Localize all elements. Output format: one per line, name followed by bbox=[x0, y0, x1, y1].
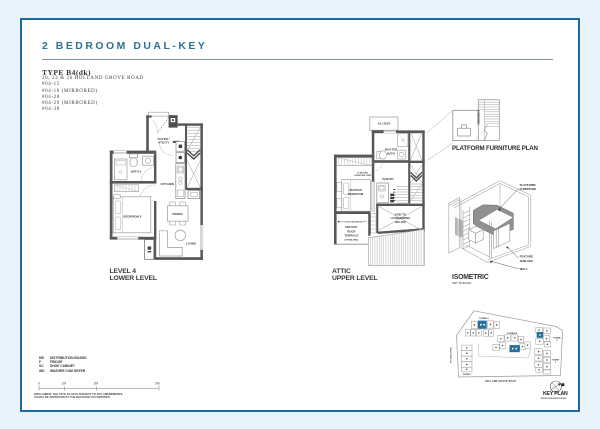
svg-text:TOWER 1: TOWER 1 bbox=[462, 374, 472, 376]
svg-text:MT SINAI DRIVE: MT SINAI DRIVE bbox=[450, 346, 453, 363]
svg-text:TOWER C: TOWER C bbox=[479, 318, 490, 320]
svg-text:HOLLAND GROVE ROAD: HOLLAND GROVE ROAD bbox=[485, 380, 516, 383]
